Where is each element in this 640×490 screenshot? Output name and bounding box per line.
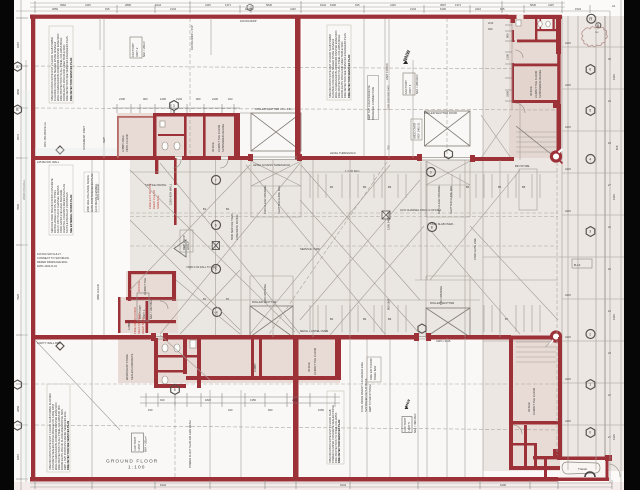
svg-text:2100: 2100 [119,97,125,101]
svg-text:3658: 3658 [16,406,20,412]
svg-text:LOBBY AREA: LOBBY AREA [121,135,125,152]
svg-text:OFFICE: OFFICE [307,362,311,372]
svg-text:RWP SVP LOCATION NOTE: RWP SVP LOCATION NOTE [367,85,371,120]
svg-text:CARPET TILE FLOOR: CARPET TILE FLOOR [532,388,536,415]
svg-text:DRAINAGE CONNECTION: DRAINAGE CONNECTION [371,87,375,120]
svg-text:NFA = 266.02m²: NFA = 266.02m² [415,74,419,94]
svg-text:1050: 1050 [318,408,324,412]
svg-text:915: 915 [105,7,110,11]
svg-text:CAVITY WALL DPC: CAVITY WALL DPC [37,341,61,345]
svg-text:4267: 4267 [16,42,20,48]
svg-text:5030: 5030 [266,3,272,7]
svg-text:SEE EXTERNAL WORKS PLAN: SEE EXTERNAL WORKS PLAN [69,195,73,233]
svg-text:GULLY: GULLY [186,241,190,250]
svg-text:940: 940 [488,27,493,31]
svg-text:WORKSHOP STORE: WORKSHOP STORE [125,354,129,380]
svg-text:6100: 6100 [440,7,446,11]
svg-text:5: 5 [174,388,176,392]
svg-text:2100: 2100 [212,97,218,101]
svg-text:4572: 4572 [16,134,20,140]
svg-text:4115: 4115 [548,3,554,7]
svg-text:OFFICE: OFFICE [529,86,533,96]
svg-text:4597: 4597 [440,3,446,7]
svg-text:FIRE DETECTION SEE SERVICES EN: FIRE DETECTION SEE SERVICES ENGINEERS PL… [343,33,347,98]
svg-text:B1: B1 [330,317,334,321]
svg-text:150: 150 [148,408,153,412]
svg-text:2100 1500 900 2400: 2100 1500 900 2400 [387,85,391,110]
svg-text:4115: 4115 [205,3,211,7]
svg-text:FIRE DETECTION SEE SERVICES EN: FIRE DETECTION SEE SERVICES ENGINEERS PL… [65,36,69,101]
svg-text:600: 600 [268,408,273,412]
svg-text:7925: 7925 [16,294,20,300]
svg-text:UNIT 3: UNIT 3 [137,441,141,451]
svg-text:915: 915 [500,7,505,11]
svg-text:1820: 1820 [205,398,211,402]
svg-text:DPC 150 ABOVE GL: DPC 150 ABOVE GL [43,121,47,147]
svg-text:BIN STORE: BIN STORE [515,164,530,168]
svg-text:B3: B3 [388,185,392,189]
svg-text:914: 914 [228,97,233,101]
svg-text:GROUND FLOOR: GROUND FLOOR [106,459,158,465]
svg-text:5: 5 [589,109,591,113]
svg-text:SHUTTER GUIDE RAIL: SHUTTER GUIDE RAIL [277,185,281,214]
svg-text:4115 CLEAR OPENING: 4115 CLEAR OPENING [263,185,267,214]
svg-text:NFA = 281m²: NFA = 281m² [144,436,148,452]
svg-text:900: 900 [506,33,510,38]
svg-text:4: 4 [589,158,591,162]
svg-text:2134: 2134 [176,97,182,101]
svg-text:REFER DRAINAGE ENG: REFER DRAINAGE ENG [37,260,67,264]
svg-text:910: 910 [160,398,165,402]
svg-text:FIRE DETECTION SEE SERVICES PL: FIRE DETECTION SEE SERVICES PLAN [66,421,70,470]
svg-text:SEALED CONCRETE: SEALED CONCRETE [130,353,134,380]
svg-text:0: 0 [589,431,591,435]
svg-text:POWER FLOAT SLAB 200 A393 MESH: POWER FLOAT SLAB 200 A393 MESH [188,420,192,468]
svg-text:NFA = 282.56m²: NFA = 282.56m² [149,299,153,319]
svg-text:4115: 4115 [390,3,396,7]
svg-text:B1: B1 [226,297,230,301]
svg-text:UNIT 4 DOCK: UNIT 4 DOCK [385,63,389,80]
svg-text:1100 HIGH WALL: 1100 HIGH WALL [169,183,173,205]
svg-text:CARPET TILE FLOOR: CARPET TILE FLOOR [217,125,221,152]
svg-text:FIRE EXIT DOOR: FIRE EXIT DOOR [369,358,373,380]
svg-text:7: 7 [215,179,217,183]
svg-text:3350: 3350 [506,91,510,97]
svg-text:915: 915 [355,3,360,7]
svg-text:9144: 9144 [340,483,346,487]
svg-text:UNIT 2: UNIT 2 [135,47,139,57]
svg-text:4270 CLEAR: 4270 CLEAR [96,184,100,200]
svg-text:4115: 4115 [612,434,616,440]
svg-text:FIRE DETECTION SERVICES PLAN: FIRE DETECTION SERVICES PLAN [347,55,351,98]
svg-text:2134: 2134 [170,7,176,11]
svg-text:MOVEMENT JOINT: MOVEMENT JOINT [82,126,86,150]
svg-text:7620: 7620 [16,204,20,210]
svg-text:TACTILE PAVING AT CROSSINGS: TACTILE PAVING AT CROSSINGS [65,192,69,233]
svg-text:LEVEL THRESHOLD: LEVEL THRESHOLD [330,151,356,155]
svg-text:2100: 2100 [506,54,510,60]
svg-text:RWP TO SW SYSTEM: RWP TO SW SYSTEM [368,384,372,412]
svg-text:4115: 4115 [85,3,91,7]
svg-text:B4: B4 [466,185,470,189]
svg-text:KEEP SHUT: KEEP SHUT [141,317,145,334]
svg-text:215 BLOCK WALL: 215 BLOCK WALL [37,160,60,164]
svg-text:910: 910 [228,408,233,412]
svg-text:1371: 1371 [455,3,461,7]
svg-text:B3: B3 [388,317,392,321]
svg-text:6: 6 [215,224,217,228]
svg-text:B-L3: B-L3 [574,263,581,267]
svg-text:CARPET TILE: CARPET TILE [143,278,147,295]
svg-text:5: 5 [215,268,217,272]
svg-text:1 in 60 FALL: 1 in 60 FALL [345,169,361,173]
svg-text:2896: 2896 [125,3,131,7]
svg-text:6100: 6100 [330,3,336,7]
svg-text:9144: 9144 [320,3,326,7]
svg-text:B-B: B-B [615,145,619,150]
svg-text:1: 1 [589,383,591,387]
svg-text:3962: 3962 [60,3,66,7]
svg-text:B2: B2 [363,185,367,189]
svg-text:A1: A1 [612,4,616,8]
svg-text:SHUTTER GUIDE RAIL: SHUTTER GUIDE RAIL [449,185,453,214]
svg-text:YARD GATE LINE: YARD GATE LINE [473,238,477,260]
svg-text:REF 1402-21: REF 1402-21 [417,122,421,138]
svg-text:3658: 3658 [16,89,20,95]
svg-text:UNIT 4: UNIT 4 [408,84,412,94]
svg-text:ROLLER SHUTTER DOOR: ROLLER SHUTTER DOOR [424,111,457,115]
svg-text:RWP + SVP: RWP + SVP [182,235,186,250]
svg-text:CARPET TILE FLOOR: CARPET TILE FLOOR [313,348,317,375]
svg-text:3050: 3050 [52,7,58,11]
svg-text:ROLLER SHUTTER: ROLLER SHUTTER [430,301,454,305]
svg-text:2/10: 2/10 [488,21,494,25]
svg-text:OFFICE: OFFICE [211,142,215,152]
svg-text:VINYL FLOOR: VINYL FLOOR [125,134,129,152]
svg-text:MESH + LINTEL OVER: MESH + LINTEL OVER [300,329,328,333]
svg-text:FIRE DETECTION SERVICES PLAN: FIRE DETECTION SERVICES PLAN [337,420,341,463]
svg-text:B: B [597,24,599,28]
svg-text:B6: B6 [522,185,526,189]
svg-text:900: 900 [196,97,201,101]
svg-text:TACTILE PAVING: TACTILE PAVING [145,183,166,187]
svg-text:SVP BOXED OUT AT BASE: SVP BOXED OUT AT BASE [364,378,368,412]
svg-text:9: 9 [430,171,432,175]
svg-text:CONNECT TO SW DRAIN: CONNECT TO SW DRAIN [37,256,69,260]
svg-text:Transit: Transit [578,467,587,471]
svg-text:PANIC BAR: PANIC BAR [373,366,377,380]
svg-text:CARPET TILE FLOOR: CARPET TILE FLOOR [534,71,538,98]
svg-text:5030: 5030 [530,3,536,7]
svg-text:B2: B2 [363,317,367,321]
svg-text:LEVEL ACCESS THRESHOLD: LEVEL ACCESS THRESHOLD [253,163,290,167]
svg-text:2210: 2210 [475,7,481,11]
svg-text:4115: 4115 [290,7,296,11]
svg-text:B1: B1 [203,297,207,301]
svg-text:UNIT 5: UNIT 5 [407,422,411,432]
svg-text:3: 3 [173,104,175,108]
svg-text:5500 SERVICE YARD: 5500 SERVICE YARD [230,214,234,240]
svg-text:SUSPENDED CEILING: SUSPENDED CEILING [221,124,225,152]
svg-text:SUSPENDED CEILING: SUSPENDED CEILING [538,70,542,98]
svg-text:1371: 1371 [225,3,231,7]
svg-text:FOUL DRAIN INVERT 1.2m REFER E: FOUL DRAIN INVERT 1.2m REFER ENG [360,362,364,412]
svg-text:9144: 9144 [160,483,166,487]
svg-text:9144: 9144 [155,3,161,7]
svg-text:2400 HIGH PALISADE FENCE: 2400 HIGH PALISADE FENCE [86,175,90,212]
svg-text:4267: 4267 [16,454,20,460]
svg-text:3: 3 [589,230,591,234]
svg-text:750: 750 [387,145,391,150]
svg-text:100 DIA RWP + SVP: 100 DIA RWP + SVP [190,25,194,50]
svg-text:2134: 2134 [410,7,416,11]
svg-text:100 DIA SW GULLY: 100 DIA SW GULLY [37,252,61,256]
svg-text:1200: 1200 [160,97,166,101]
svg-text:1200 2400 600: 1200 2400 600 [387,212,391,230]
svg-text:LOBBY: LOBBY [253,363,257,372]
svg-text:2: 2 [589,333,591,337]
svg-text:6: 6 [589,68,591,72]
svg-text:CONCRETE PAVING: CONCRETE PAVING [235,214,239,240]
svg-text:1350: 1350 [250,398,256,402]
svg-text:2100: 2100 [292,398,298,402]
svg-text:OFFICE: OFFICE [137,281,141,292]
svg-text:8: 8 [431,226,433,230]
svg-text:ROLLER SHUTTER 4.5 x 4.5m: ROLLER SHUTTER 4.5 x 4.5m [255,107,293,111]
svg-text:3960 CLEAR: 3960 CLEAR [96,284,100,300]
svg-text:GATE POSITION REFER PLAN: GATE POSITION REFER PLAN [90,174,94,212]
svg-text:LOBBY: LOBBY [127,321,131,330]
svg-text:SERVICE YARD: SERVICE YARD [300,247,320,251]
svg-text:OFFICE: OFFICE [527,402,531,412]
svg-text:NFA = 498.45m²: NFA = 498.45m² [413,413,417,433]
svg-text:4115 CLEAR OPENING: 4115 CLEAR OPENING [437,185,441,214]
svg-text:B1: B1 [226,207,230,211]
svg-text:FIRE DETECTION SERVICES PLAN: FIRE DETECTION SERVICES PLAN [69,58,73,101]
svg-text:DWG 1402-D-01: DWG 1402-D-01 [37,264,58,268]
svg-text:B1: B1 [330,185,334,189]
svg-text:4115: 4115 [612,314,616,320]
svg-text:4115: 4115 [612,74,616,80]
svg-text:4115 x 4115: 4115 x 4115 [436,339,451,343]
svg-text:1:100: 1:100 [128,465,146,471]
svg-text:900: 900 [143,97,148,101]
svg-text:1524: 1524 [575,7,581,11]
svg-text:NFA = 261m²: NFA = 261m² [142,41,146,57]
svg-text:4115: 4115 [612,194,616,200]
svg-text:100 DIA RWP: 100 DIA RWP [240,19,257,23]
svg-text:6100: 6100 [500,483,506,487]
